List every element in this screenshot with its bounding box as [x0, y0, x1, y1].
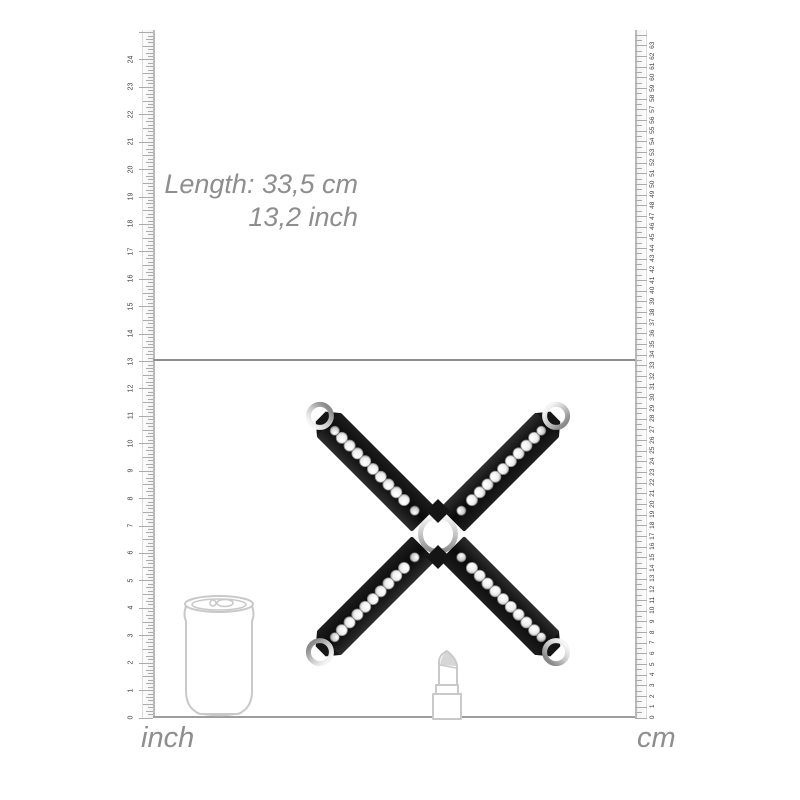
hogtie-cross-product — [300, 396, 576, 672]
strap-bottom-right — [440, 536, 576, 672]
strap-top-left — [300, 396, 436, 532]
strap-top-right — [440, 396, 576, 532]
scene-drawing — [0, 0, 800, 800]
soda-can-icon — [185, 596, 254, 716]
strap-bottom-left — [300, 536, 436, 672]
product-measurement-image: 0123456789101112131415161718192021222324… — [0, 0, 800, 800]
lipstick-icon — [433, 651, 461, 719]
